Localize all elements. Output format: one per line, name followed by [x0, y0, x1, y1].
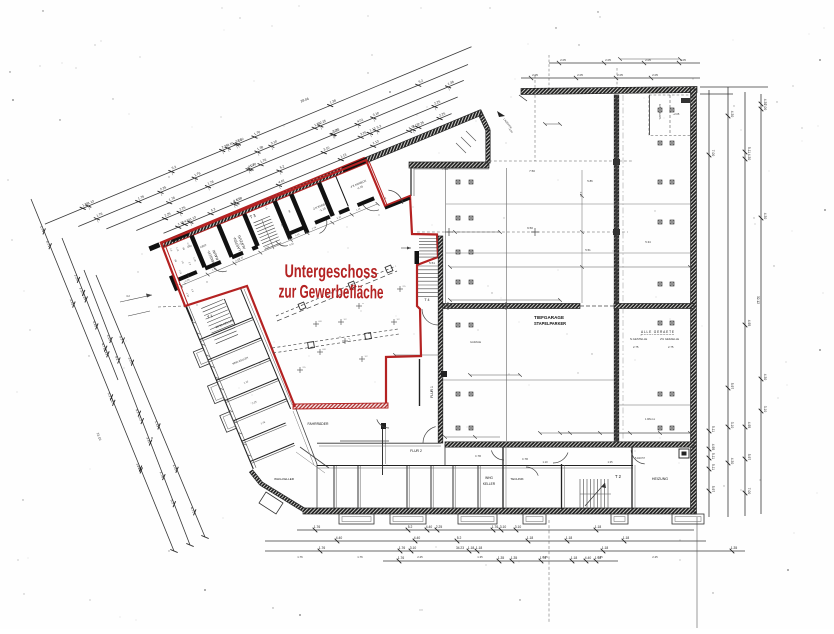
- svg-text:2.05: 2.05: [645, 58, 651, 62]
- svg-text:1.35: 1.35: [498, 556, 505, 560]
- svg-text:2% GEFAELLE: 2% GEFAELLE: [660, 337, 679, 341]
- svg-text:1.10: 1.10: [579, 191, 583, 197]
- svg-text:2.25: 2.25: [542, 555, 548, 559]
- svg-text:4.30: 4.30: [730, 458, 734, 465]
- svg-text:5.51: 5.51: [429, 261, 435, 265]
- svg-text:5.2: 5.2: [457, 536, 462, 540]
- svg-text:4.30: 4.30: [747, 154, 751, 161]
- svg-text:5.34: 5.34: [645, 240, 651, 244]
- svg-text:5.18/2.57: 5.18/2.57: [635, 457, 646, 460]
- svg-text:4.95: 4.95: [747, 422, 751, 429]
- svg-text:1.76: 1.76: [398, 556, 405, 560]
- svg-text:2.25: 2.25: [597, 555, 603, 559]
- svg-text:1.76: 1.76: [314, 525, 321, 529]
- svg-text:2.25: 2.25: [436, 525, 443, 529]
- svg-text:4.30: 4.30: [763, 213, 767, 220]
- svg-text:1.76: 1.76: [357, 555, 363, 559]
- svg-text:4.95: 4.95: [747, 320, 751, 327]
- svg-text:TIEFGARAGE: TIEFGARAGE: [534, 315, 564, 320]
- svg-text:7.00: 7.00: [711, 150, 715, 157]
- svg-text:9.50: 9.50: [527, 226, 533, 230]
- svg-text:1.35: 1.35: [607, 460, 613, 464]
- svg-text:3.10: 3.10: [515, 525, 522, 529]
- svg-text:7.00: 7.00: [747, 488, 751, 495]
- svg-text:1.18: 1.18: [566, 536, 573, 540]
- svg-text:STAPELPARKER: STAPELPARKER: [534, 321, 566, 326]
- svg-text:5.97: 5.97: [711, 486, 715, 493]
- svg-text:GARAGE: GARAGE: [470, 340, 481, 344]
- svg-text:5.11: 5.11: [711, 426, 715, 432]
- svg-text:4.30: 4.30: [763, 374, 767, 381]
- svg-text:T 4: T 4: [424, 298, 429, 302]
- svg-text:FAHRRÄDER: FAHRRÄDER: [308, 422, 329, 426]
- svg-text:1.98xxxx: 1.98xxxx: [645, 417, 656, 421]
- svg-text:Untergeschoss: Untergeschoss: [284, 260, 377, 282]
- svg-text:5.2: 5.2: [408, 525, 413, 529]
- svg-text:1.18: 1.18: [602, 546, 609, 550]
- svg-text:2.75: 2.75: [633, 345, 639, 349]
- svg-text:4.40: 4.40: [414, 536, 421, 540]
- svg-text:1.35: 1.35: [511, 556, 518, 560]
- svg-text:2.05: 2.05: [605, 58, 611, 62]
- svg-text:1.18: 1.18: [527, 536, 534, 540]
- svg-text:3.10: 3.10: [410, 546, 417, 550]
- svg-text:N.GESTELLE: N.GESTELLE: [630, 337, 647, 341]
- svg-text:1.76: 1.76: [297, 555, 303, 559]
- svg-text:7.50: 7.50: [442, 167, 448, 171]
- svg-text:FLUR 1: FLUR 1: [430, 386, 434, 398]
- svg-text:2.05: 2.05: [652, 73, 658, 77]
- svg-text:4.40: 4.40: [336, 536, 343, 540]
- svg-text:1.76: 1.76: [492, 525, 499, 529]
- svg-text:zur Gewerbefläche: zur Gewerbefläche: [278, 281, 383, 303]
- svg-text:1.35: 1.35: [731, 546, 738, 550]
- svg-text:HEIZUNG: HEIZUNG: [652, 477, 668, 481]
- svg-text:ALLE GERAETE: ALLE GERAETE: [641, 330, 674, 334]
- svg-text:2.05: 2.05: [577, 73, 583, 77]
- svg-text:2.75: 2.75: [668, 345, 674, 349]
- svg-text:C.TR: C.TR: [475, 454, 481, 458]
- svg-text:1.10: 1.10: [542, 460, 548, 464]
- svg-text:32.12: 32.12: [756, 296, 760, 304]
- svg-text:1.18: 1.18: [468, 546, 475, 550]
- svg-text:2.05: 2.05: [617, 73, 623, 77]
- svg-text:3.2: 3.2: [126, 294, 130, 298]
- svg-text:1.35: 1.35: [477, 555, 483, 559]
- svg-text:1.18: 1.18: [595, 525, 602, 529]
- svg-text:4.30: 4.30: [730, 111, 734, 118]
- svg-text:7.50: 7.50: [529, 169, 535, 173]
- svg-text:FLUR 2: FLUR 2: [410, 449, 422, 453]
- svg-text:7.00: 7.00: [763, 104, 767, 111]
- svg-text:5.97: 5.97: [747, 454, 751, 461]
- svg-text:5.11: 5.11: [711, 453, 715, 459]
- svg-text:3.10: 3.10: [763, 406, 767, 413]
- svg-text:1.76: 1.76: [319, 546, 326, 550]
- svg-text:2.05: 2.05: [560, 58, 566, 62]
- svg-text:1.18: 1.18: [571, 556, 578, 560]
- svg-text:1.76: 1.76: [399, 546, 406, 550]
- svg-text:WHG-KELLER: WHG-KELLER: [274, 477, 295, 481]
- svg-text:4.40: 4.40: [585, 556, 592, 560]
- svg-text:1.18: 1.18: [476, 546, 483, 550]
- svg-text:2.25: 2.25: [652, 555, 658, 559]
- svg-text:5.97: 5.97: [730, 383, 734, 390]
- svg-text:3.10: 3.10: [730, 422, 734, 429]
- svg-text:WHG: WHG: [485, 476, 493, 480]
- svg-text:5.51: 5.51: [585, 248, 591, 252]
- svg-text:TECHNIK: TECHNIK: [510, 477, 523, 481]
- svg-text:34.23: 34.23: [456, 546, 464, 550]
- svg-text:~2.05: ~2.05: [673, 112, 680, 116]
- svg-text:5.86: 5.86: [587, 179, 593, 183]
- svg-text:4.40: 4.40: [426, 525, 433, 529]
- svg-text:5.11: 5.11: [747, 147, 751, 153]
- svg-text:KELLER: KELLER: [483, 482, 496, 486]
- svg-text:1.18: 1.18: [623, 536, 630, 540]
- svg-text:5.11: 5.11: [711, 464, 715, 470]
- svg-text:C.TR: C.TR: [522, 457, 528, 461]
- svg-text:4.95: 4.95: [711, 444, 715, 451]
- svg-text:T 2: T 2: [615, 474, 622, 479]
- svg-text:2.25: 2.25: [417, 555, 423, 559]
- svg-text:3.10: 3.10: [500, 525, 507, 529]
